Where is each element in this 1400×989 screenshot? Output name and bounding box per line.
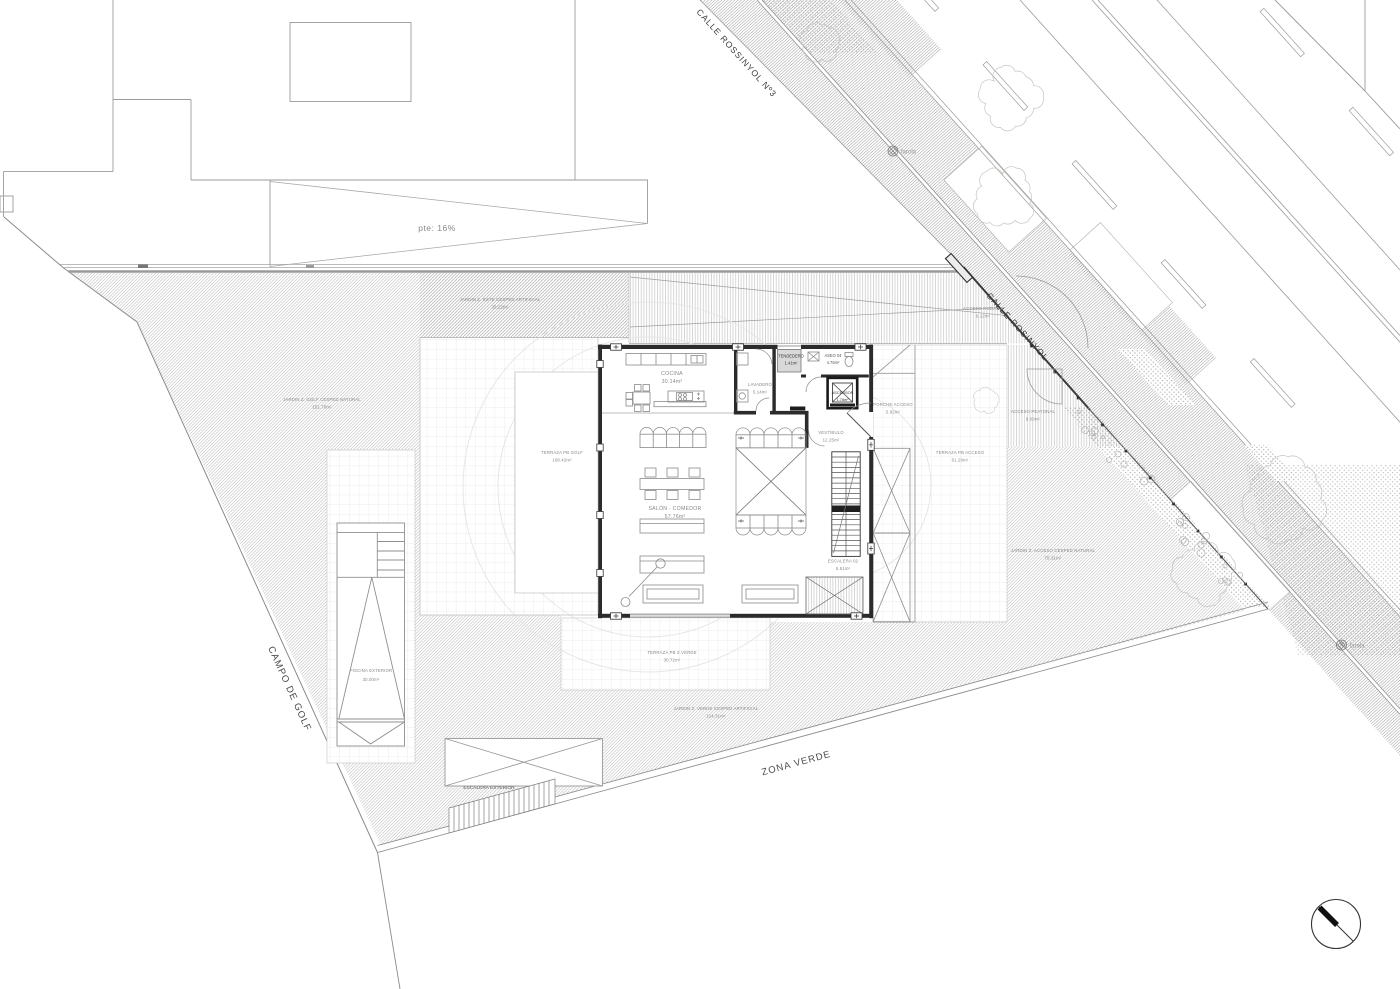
svg-text:114.31m²: 114.31m² [706, 714, 725, 719]
svg-text:9.09m²: 9.09m² [1026, 417, 1041, 422]
svg-text:VESTÍBULO: VESTÍBULO [818, 430, 844, 435]
svg-text:4.76m²: 4.76m² [827, 360, 840, 365]
svg-text:TERRAZA PB GOLF: TERRAZA PB GOLF [541, 450, 583, 455]
svg-text:5.51m²: 5.51m² [836, 566, 851, 571]
svg-text:TENDEDERO: TENDEDERO [778, 354, 804, 359]
svg-text:farola: farola [1350, 644, 1366, 650]
svg-text:LAVADERO: LAVADERO [748, 382, 772, 387]
svg-text:30.14m²: 30.14m² [662, 379, 683, 385]
svg-text:1.41m²: 1.41m² [785, 361, 798, 366]
svg-text:75.31m²: 75.31m² [1045, 556, 1062, 561]
svg-text:PORCHE ACCESO: PORCHE ACCESO [873, 402, 913, 407]
svg-text:5.92m²: 5.92m² [886, 410, 901, 415]
svg-text:TERRAZA PB Z.VERDE: TERRAZA PB Z.VERDE [647, 650, 696, 655]
svg-text:108.42m²: 108.42m² [552, 458, 572, 463]
svg-text:1.78m²: 1.78m² [836, 397, 849, 402]
svg-text:ESCALERA EXTERIOR: ESCALERA EXTERIOR [463, 785, 515, 791]
svg-text:29.22m²: 29.22m² [492, 305, 509, 310]
svg-text:SALÓN - COMEDOR: SALÓN - COMEDOR [648, 505, 701, 512]
svg-text:5.14m²: 5.14m² [753, 390, 768, 395]
svg-text:TERRAZA PB ACCESO: TERRAZA PB ACCESO [936, 450, 985, 455]
svg-text:COCINA: COCINA [661, 371, 683, 377]
svg-text:PISCINA EXTERIOR: PISCINA EXTERIOR [350, 668, 393, 673]
svg-text:pte: 16%: pte: 16% [418, 223, 456, 233]
svg-text:JARDIN Z. ESTE CESPED ARTIFICI: JARDIN Z. ESTE CESPED ARTIFICIAL [460, 297, 541, 302]
svg-text:57.76m²: 57.76m² [665, 514, 686, 520]
svg-text:6.12m²: 6.12m² [976, 314, 991, 319]
svg-text:JARDIN Z. GOLF CESPED NATURAL: JARDIN Z. GOLF CESPED NATURAL [283, 397, 361, 402]
svg-text:61.29m²: 61.29m² [952, 458, 969, 463]
svg-text:ACCESO PEATONAL: ACCESO PEATONAL [1011, 409, 1056, 414]
svg-text:151.76m²: 151.76m² [312, 405, 332, 410]
svg-text:ACCESO RODADO: ACCESO RODADO [963, 306, 1004, 311]
svg-text:30.00m²: 30.00m² [363, 677, 380, 682]
svg-text:12.25m²: 12.25m² [823, 438, 840, 443]
svg-text:JARDIN Z. ACCESO CESPED NATURA: JARDIN Z. ACCESO CESPED NATURAL [1011, 548, 1096, 553]
svg-text:ASCENSOR: ASCENSOR [832, 390, 854, 395]
svg-text:ASEO 04: ASEO 04 [824, 353, 842, 358]
svg-text:ESCALERA 02: ESCALERA 02 [828, 559, 859, 564]
svg-text:farola: farola [901, 150, 917, 156]
svg-text:30.72m²: 30.72m² [664, 658, 681, 663]
svg-text:JARDIN Z. VERDE CESPED ARTIFIC: JARDIN Z. VERDE CESPED ARTIFICIAL [674, 706, 759, 711]
